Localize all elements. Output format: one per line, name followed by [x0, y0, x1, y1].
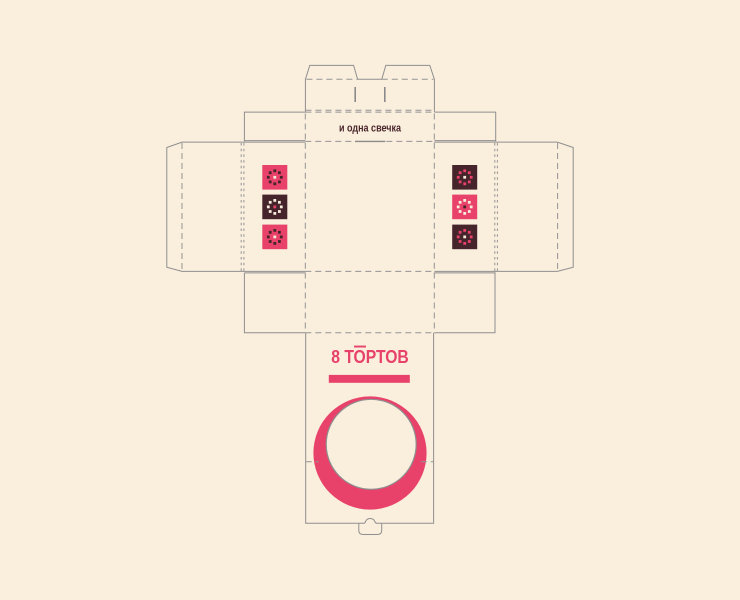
svg-text:и одна свечка: и одна свечка	[339, 122, 402, 134]
svg-text:8 ТОРТОВ: 8 ТОРТОВ	[331, 346, 409, 367]
